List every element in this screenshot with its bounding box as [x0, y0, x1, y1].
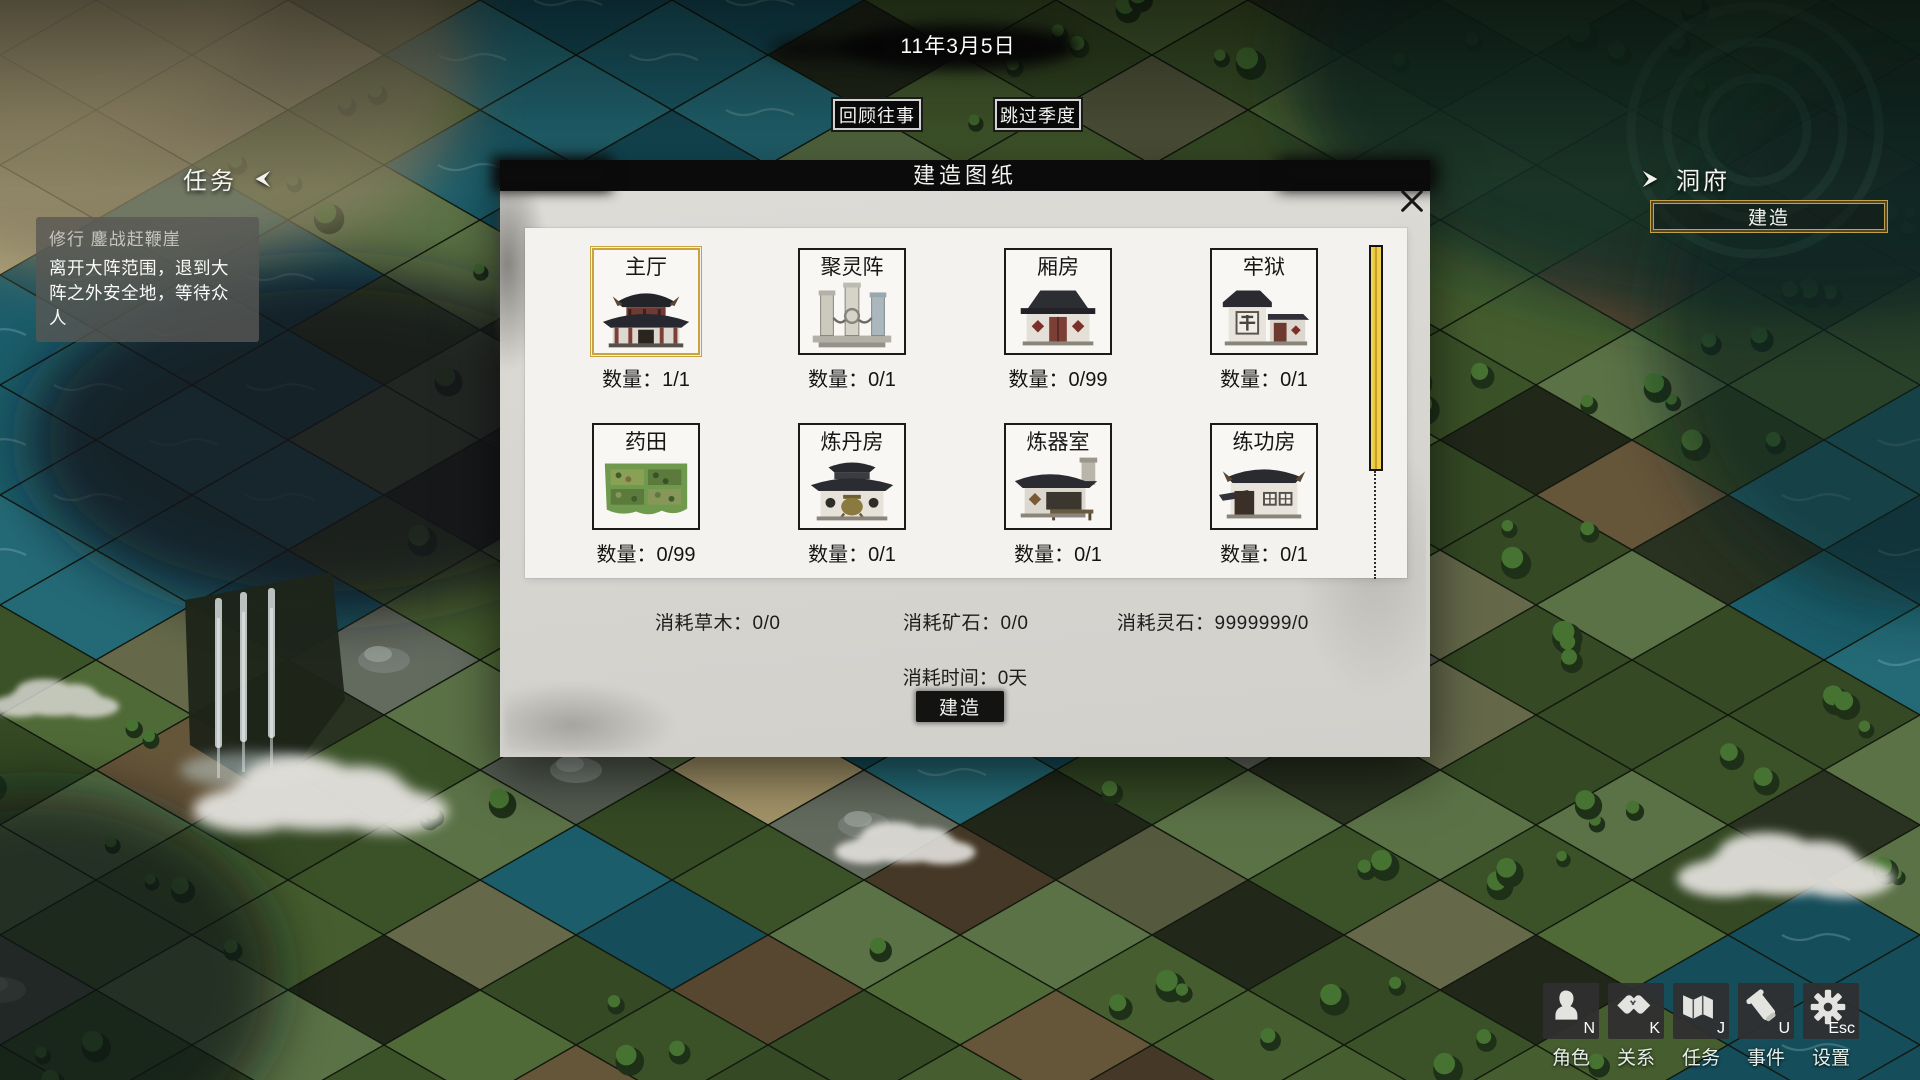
alchemy-room-icon — [801, 451, 903, 527]
building-count: 数量：0/99 — [597, 538, 696, 567]
building-count: 数量：0/1 — [1014, 538, 1102, 567]
cost-time: 消耗时间：0天 — [500, 663, 1430, 690]
game-screen: 11年3月5日 回顾往事 跳过季度 任务 修行 鏖战赶鞭崖 离开大阵范围，退到大… — [0, 0, 1920, 1080]
hotkey-button[interactable]: K — [1608, 983, 1664, 1039]
hotkey-item: U 事件 — [1738, 983, 1794, 1070]
building-cell: 牢狱 数量：0/1 — [1210, 248, 1318, 355]
building-cell: 药田 数量：0/99 — [592, 423, 700, 530]
date-banner: 11年3月5日 — [838, 24, 1078, 70]
collapse-left-icon[interactable] — [252, 169, 272, 189]
building-cell: 厢房 数量：0/99 — [1004, 248, 1112, 355]
hotkey-label: 关系 — [1617, 1043, 1655, 1070]
scrollbar-track — [1374, 471, 1376, 579]
tasks-title: 任务 — [183, 161, 237, 196]
hotkey-item: J 任务 — [1673, 983, 1729, 1070]
build-button[interactable]: 建造 — [916, 691, 1004, 722]
building-card[interactable]: 聚灵阵 — [798, 248, 906, 355]
building-cell: 主厅 数量：1/1 — [592, 248, 700, 355]
hotkey-letter: Esc — [1828, 1020, 1855, 1038]
hotkey-label: 事件 — [1747, 1043, 1785, 1070]
building-card[interactable]: 药田 — [592, 423, 700, 530]
hotkey-item: N 角色 — [1543, 983, 1599, 1070]
hotkey-item: K 关系 — [1608, 983, 1664, 1070]
hotkey-button[interactable]: J — [1673, 983, 1729, 1039]
quest-title: 修行 鏖战赶鞭崖 — [49, 225, 246, 250]
ink-smudge-bottom — [504, 683, 674, 753]
cost-ore: 消耗矿石：0/0 — [903, 608, 1028, 635]
dongfu-build-button[interactable]: 建造 — [1650, 200, 1888, 233]
building-card[interactable]: 炼器室 — [1004, 423, 1112, 530]
building-cell: 炼器室 数量：0/1 — [1004, 423, 1112, 530]
hotkey-label: 任务 — [1682, 1043, 1720, 1070]
main-hall-icon — [595, 276, 697, 352]
tasks-header: 任务 — [183, 161, 272, 196]
forge-room-icon — [1007, 451, 1109, 527]
hotkey-item: Esc 设置 — [1803, 983, 1859, 1070]
dialog-title-bar: 建造图纸 — [500, 160, 1430, 191]
building-count: 数量：1/1 — [602, 363, 690, 392]
close-icon[interactable] — [1396, 185, 1428, 217]
wing-room-icon — [1007, 276, 1109, 352]
building-count: 数量：0/1 — [808, 363, 896, 392]
build-blueprint-dialog: 建造图纸 主厅 数量：1/1 — [500, 160, 1430, 757]
hotkey-letter: J — [1717, 1020, 1725, 1038]
hotkey-letter: K — [1649, 1020, 1660, 1038]
cost-wood: 消耗草木：0/0 — [655, 608, 780, 635]
hotkey-label: 角色 — [1552, 1043, 1590, 1070]
hotkey-bar: N 角色 K 关系 J 任务 — [1543, 983, 1859, 1070]
quest-description: 离开大阵范围，退到大阵之外安全地，等待众人 — [49, 256, 246, 331]
building-count: 数量：0/1 — [1220, 538, 1308, 567]
hotkey-letter: U — [1778, 1020, 1790, 1038]
building-count: 数量：0/99 — [1009, 363, 1108, 392]
building-card[interactable]: 炼丹房 — [798, 423, 906, 530]
skip-season-button[interactable]: 跳过季度 — [995, 99, 1081, 130]
building-card[interactable]: 厢房 — [1004, 248, 1112, 355]
dongfu-title: 洞府 — [1676, 161, 1730, 196]
building-card[interactable]: 练功房 — [1210, 423, 1318, 530]
dialog-title: 建造图纸 — [500, 160, 1430, 191]
building-cell: 聚灵阵 数量：0/1 — [798, 248, 906, 355]
prison-icon — [1213, 276, 1315, 352]
building-grid-panel: 主厅 数量：1/1 聚灵阵 数量：0/1 — [525, 228, 1407, 578]
cost-spirit-stone: 消耗灵石：9999999/0 — [1117, 608, 1309, 635]
hotkey-letter: N — [1583, 1020, 1595, 1038]
herb-field-icon — [595, 451, 697, 527]
hotkey-button[interactable]: Esc — [1803, 983, 1859, 1039]
building-cell: 炼丹房 数量：0/1 — [798, 423, 906, 530]
hotkey-button[interactable]: N — [1543, 983, 1599, 1039]
quest-panel[interactable]: 修行 鏖战赶鞭崖 离开大阵范围，退到大阵之外安全地，等待众人 — [36, 217, 259, 342]
building-list: 主厅 数量：1/1 聚灵阵 数量：0/1 — [592, 248, 1318, 530]
hotkey-label: 设置 — [1812, 1043, 1850, 1070]
dongfu-header: 洞府 — [1641, 161, 1730, 196]
game-date: 11年3月5日 — [838, 24, 1078, 70]
building-count: 数量：0/1 — [808, 538, 896, 567]
building-count: 数量：0/1 — [1220, 363, 1308, 392]
building-cell: 练功房 数量：0/1 — [1210, 423, 1318, 530]
building-card[interactable]: 主厅 — [592, 248, 700, 355]
scrollbar-thumb[interactable] — [1369, 245, 1383, 471]
review-past-button[interactable]: 回顾往事 — [833, 99, 921, 130]
training-room-icon — [1213, 451, 1315, 527]
spirit-array-icon — [801, 276, 903, 352]
hotkey-button[interactable]: U — [1738, 983, 1794, 1039]
tasks-icon — [1676, 985, 1720, 1029]
expand-right-icon[interactable] — [1641, 169, 1661, 189]
building-card[interactable]: 牢狱 — [1210, 248, 1318, 355]
